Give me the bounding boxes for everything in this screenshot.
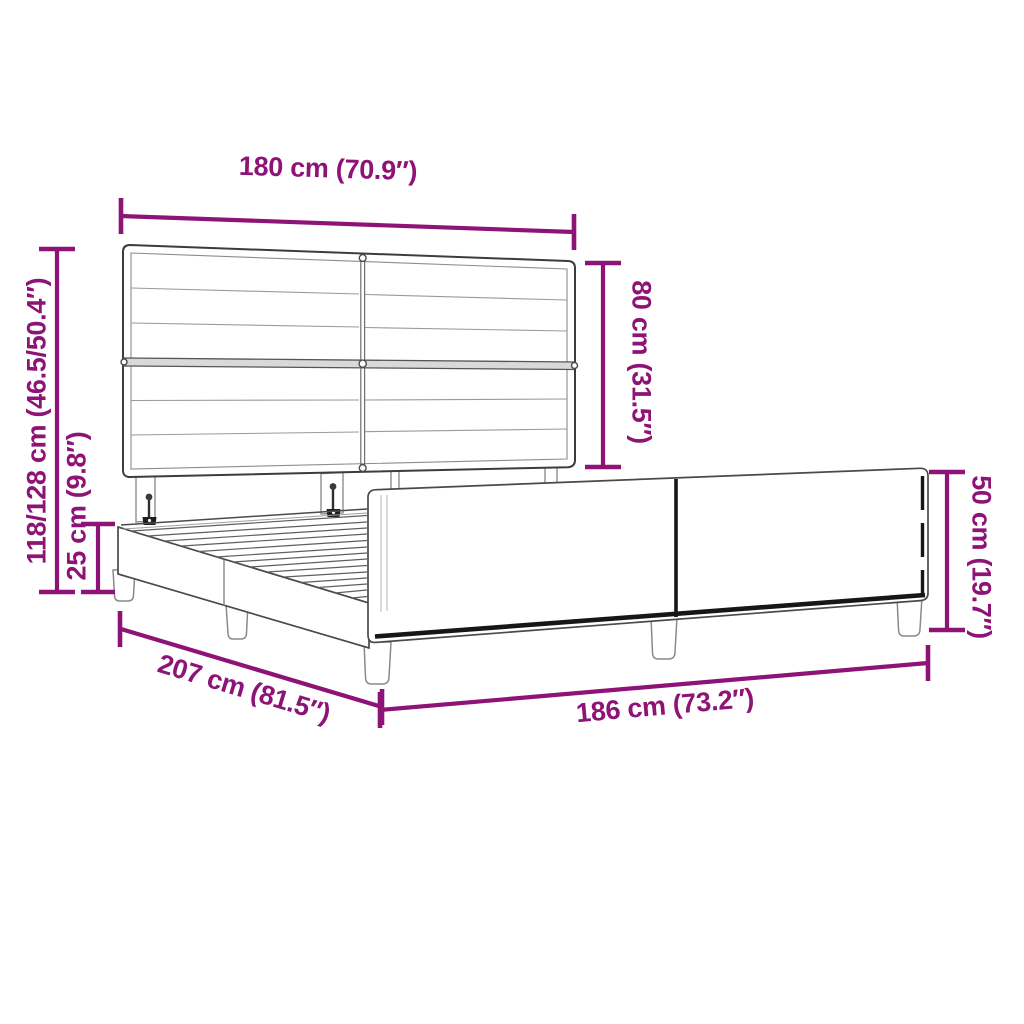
headboard — [121, 245, 578, 477]
pin-ball-left — [146, 494, 153, 501]
label-headboard-height: 80 cm (31.5″) — [626, 280, 657, 444]
foot-panel — [368, 468, 928, 642]
bed-frame-drawing — [0, 0, 1024, 1024]
dim-footboard-height — [929, 472, 965, 630]
headboard-leg-left — [136, 476, 155, 522]
leg-front-mid — [651, 617, 677, 659]
dim-headboard-height — [585, 263, 621, 467]
dim-headboard-width — [121, 198, 574, 250]
pin-ball-mid — [330, 483, 337, 490]
label-headboard-width: 180 cm (70.9″) — [238, 151, 417, 187]
label-total-height: 118/128 cm (46.5/50.4″) — [22, 278, 53, 565]
dimension-diagram: 180 cm (70.9″) 80 cm (31.5″) 118/128 cm … — [0, 0, 1024, 1024]
label-base-height: 25 cm (9.8″) — [62, 432, 93, 581]
label-footboard-height: 50 cm (19.7″) — [966, 475, 997, 639]
